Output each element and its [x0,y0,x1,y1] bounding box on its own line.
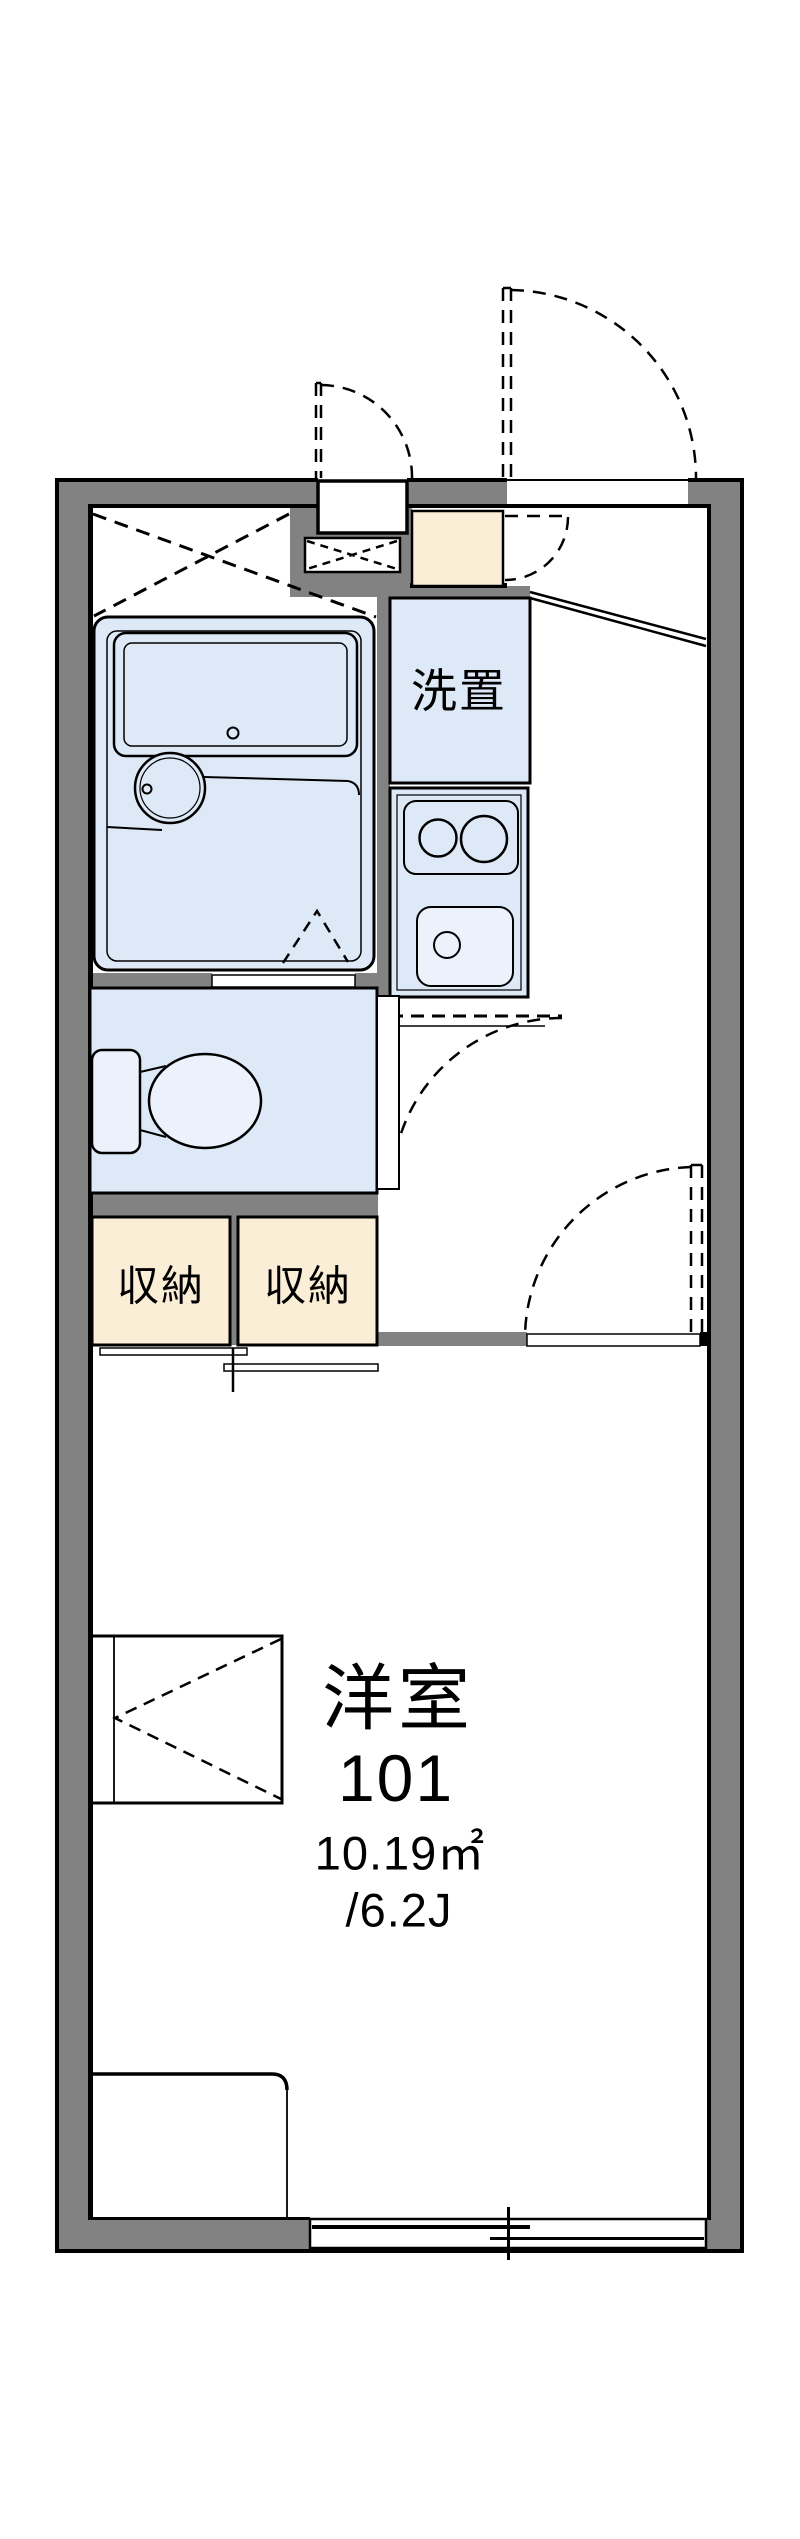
window-mullion [507,2207,510,2260]
kitchen-sink [417,907,513,986]
room-door-threshold [527,1334,700,1346]
shoe-cabinet [305,538,400,572]
room-number-label: 101 [338,1740,454,1816]
meter-box [318,481,407,533]
closet-sliding-doors [100,1348,378,1392]
genkan-tile [412,511,503,586]
bathtub [114,633,357,756]
storage-right-label: 収納 [264,1253,352,1314]
kitchen-unit [390,788,528,997]
wash-basin [135,753,205,823]
kitchen-door-swing [392,1018,562,1188]
room-area-tatami-label: /6.2J [346,1883,453,1938]
entrance-door-swing [503,288,696,479]
storage-left-label: 収納 [117,1253,205,1314]
bed-counter-outline [90,2074,287,2217]
floorplan-canvas: 洗置 収納 収納 洋室 101 10.19㎡ /6.2J [0,0,800,2539]
meter-box-door-swing [316,383,412,479]
toilet-room [90,988,377,1193]
hall-partition [377,996,399,1189]
room-area-sqm-label: 10.19㎡ [315,1815,486,1884]
bath-door-threshold [212,975,355,987]
laundry-label: 洗置 [411,655,507,721]
toilet [92,1050,261,1153]
toilet-bowl [149,1054,261,1148]
stove [404,801,518,874]
toilet-tank [92,1050,140,1153]
room-side-cabinet [93,1636,282,1803]
entrance-inner-door-swing [505,516,568,580]
room-door-swing [525,1165,702,1336]
genkan-step-edge [530,592,706,646]
room-name-label: 洋室 [322,1640,474,1745]
